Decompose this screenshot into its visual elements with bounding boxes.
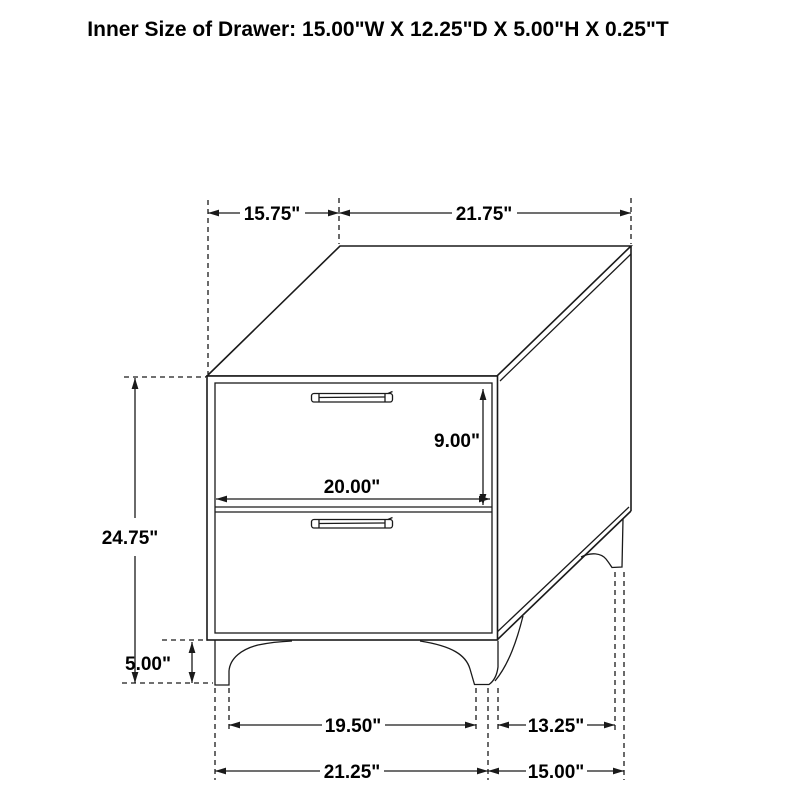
dim-leg-height: 5.00" [125,640,208,683]
handle-face-line [319,397,385,398]
arrowhead [189,672,196,683]
side-panel-bottom-edge-inner [495,507,629,634]
arrowhead [604,722,615,729]
cabinet-front-frame [207,376,498,640]
dim-front-feet-outer-label: 21.25" [324,762,381,783]
dim-overall-height-label: 24.75" [102,528,159,549]
arrowhead [208,210,219,217]
dim-drawer-width-label: 20.00" [324,477,381,498]
dim-side-feet-outer-label: 15.00" [528,762,585,783]
front-frame-outer [207,376,498,640]
arrowhead [132,378,139,389]
dimension-diagram-page: Inner Size of Drawer: 15.00"W X 12.25"D … [0,0,800,800]
side-panel-bottom-edge-outer [497,511,631,640]
arrowhead [498,722,509,729]
dim-overall-height: 24.75" [102,377,213,683]
handle-face-line [319,523,385,524]
handle-bottom-drawer [312,518,393,529]
dim-leg-height-label: 5.00" [125,654,171,675]
dim-front-feet-inner: 19.50" [229,716,476,737]
cabinet-top-face [207,246,631,376]
dim-side-feet-inner: 13.25" [498,716,615,737]
back-right-leg [581,519,623,568]
arrowhead [465,722,476,729]
dim-top-width: 21.75" [339,198,631,244]
front-right-leg-side-bracket [495,616,523,681]
arrowhead [620,210,631,217]
arrowhead [229,722,240,729]
diagram-title: Inner Size of Drawer: 15.00"W X 12.25"D … [87,18,669,41]
dim-top-depth-label: 15.75" [244,204,301,225]
arrowhead [477,768,488,775]
dim-side-feet-inner-label: 13.25" [528,716,585,737]
arrowhead [328,210,339,217]
arrowhead [189,642,196,653]
dim-drawer-height-label: 9.00" [434,431,480,452]
front-right-leg [420,641,498,685]
nightstand-dimension-diagram: Inner Size of Drawer: 15.00"W X 12.25"D … [0,0,800,800]
dim-side-feet-outer: 15.00" [488,762,624,783]
dim-top-width-label: 21.75" [456,204,513,225]
nightstand-drawing [207,246,631,685]
front-left-leg [215,640,292,685]
arrowhead [488,768,499,775]
dim-front-feet-outer: 21.25" [215,762,488,783]
arrowhead [339,210,350,217]
handle-top-drawer [312,392,393,403]
arrowhead [215,768,226,775]
dim-front-feet-inner-label: 19.50" [325,716,382,737]
arrowhead [613,768,624,775]
